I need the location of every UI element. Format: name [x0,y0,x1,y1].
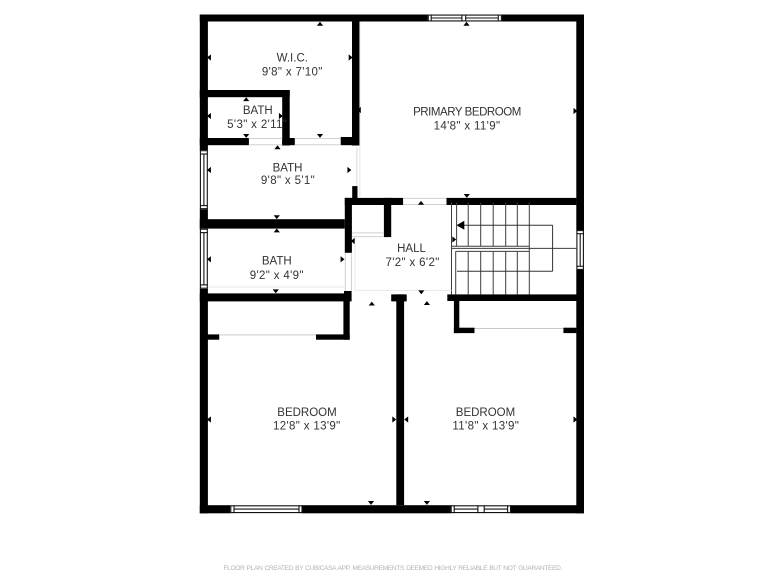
svg-text:5'3" x 2'11": 5'3" x 2'11" [227,119,287,131]
svg-text:PRIMARY BEDROOM: PRIMARY BEDROOM [413,107,521,119]
svg-text:BATH: BATH [262,256,292,268]
svg-text:9'8" x 7'10": 9'8" x 7'10" [262,67,323,79]
svg-text:12'8" x 13'9": 12'8" x 13'9" [273,421,341,433]
svg-text:BEDROOM: BEDROOM [456,407,515,419]
svg-text:11'8" x 13'9": 11'8" x 13'9" [452,421,519,433]
svg-text:HALL: HALL [397,243,426,255]
svg-text:7'2" x 6'2": 7'2" x 6'2" [386,257,440,269]
svg-text:9'2" x 4'9": 9'2" x 4'9" [250,270,304,282]
svg-text:W.I.C.: W.I.C. [277,53,308,65]
svg-text:BATH: BATH [243,105,273,117]
svg-text:FLOOR PLAN CREATED BY CUBICASA: FLOOR PLAN CREATED BY CUBICASA APP. MEAS… [223,565,562,572]
svg-text:14'8" x 11'9": 14'8" x 11'9" [434,121,501,133]
svg-text:9'8" x 5'1": 9'8" x 5'1" [261,175,315,187]
svg-text:BEDROOM: BEDROOM [277,407,336,419]
svg-text:BATH: BATH [273,162,303,174]
